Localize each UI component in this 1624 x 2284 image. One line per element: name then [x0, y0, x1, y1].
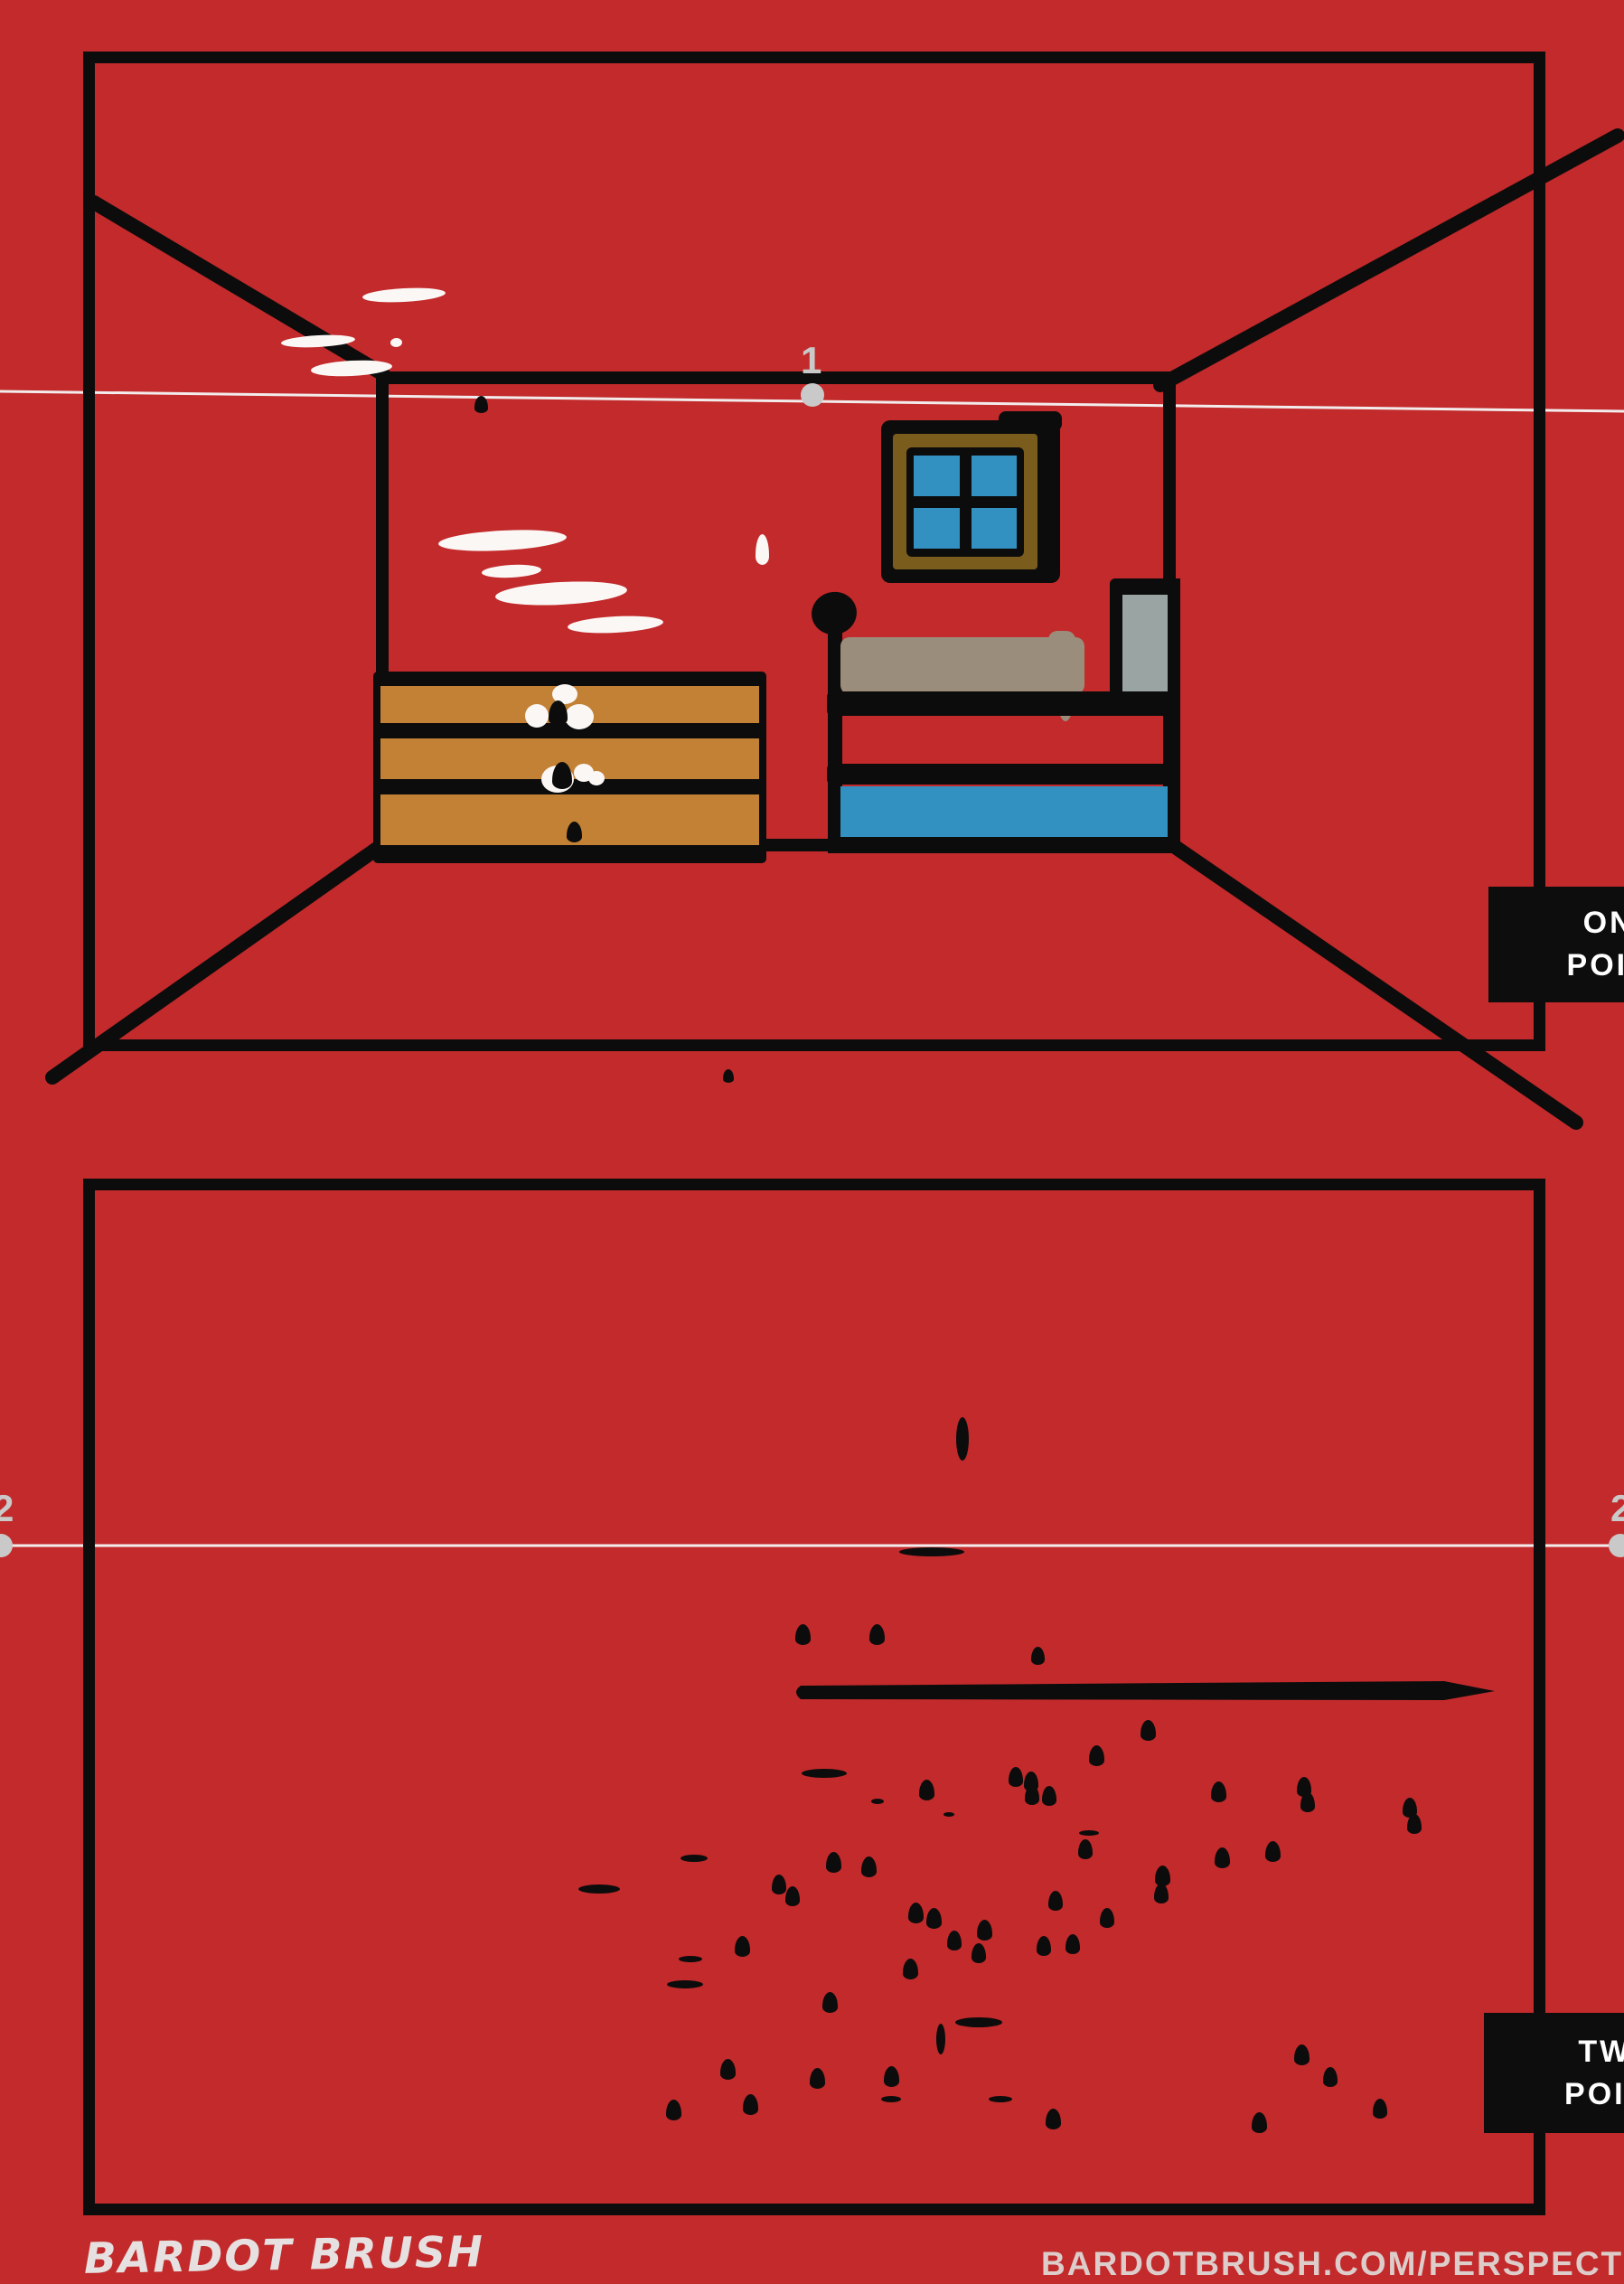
caption-two-point-line2: POINT — [1564, 2073, 1624, 2116]
paint-drop — [972, 1943, 986, 1963]
paint-drop — [1025, 1785, 1039, 1805]
window — [881, 420, 1060, 583]
caption-two-point: TWO POINT — [1484, 2013, 1624, 2133]
paint-drop — [1009, 1767, 1023, 1787]
paint-drop — [1089, 1745, 1104, 1766]
paint-drop — [772, 1875, 786, 1894]
paint-drop — [1046, 2109, 1061, 2129]
paint-dash — [943, 1812, 954, 1817]
paint-drop — [1031, 1647, 1045, 1665]
paint-drop — [1042, 1786, 1056, 1806]
paint-drop — [720, 2059, 736, 2080]
paint-streak — [956, 1417, 969, 1461]
dresser — [373, 672, 766, 863]
paint-drop — [822, 1992, 838, 2013]
paint-dash — [989, 2096, 1012, 2102]
bed — [812, 578, 1184, 859]
paint-dash — [881, 2096, 901, 2102]
paint-drop — [1037, 1936, 1051, 1956]
paint-dash — [802, 1769, 847, 1778]
paint-drop — [474, 396, 488, 413]
paint-drop — [1065, 1934, 1080, 1954]
drawer-knob-highlight — [588, 771, 605, 785]
paint-dash — [681, 1855, 708, 1862]
window-pane — [914, 456, 960, 496]
drawer-knob-highlight — [565, 704, 594, 729]
vanishing-point-2-right-dot — [1609, 1534, 1624, 1557]
paint-drop — [743, 2094, 758, 2115]
bed-rail-bottom — [827, 837, 1180, 853]
panel-one-point: 1 — [0, 0, 1624, 1175]
wall-highlight — [390, 338, 402, 348]
paint-drop — [1048, 1891, 1063, 1911]
paint-dash — [578, 1885, 620, 1894]
bed-rail-top — [827, 691, 1180, 716]
drawer-knob-highlight — [525, 704, 549, 728]
paint-drop — [1373, 2099, 1387, 2119]
paint-drop — [1407, 1814, 1422, 1834]
bed-post-right — [1168, 578, 1180, 853]
caption-one-point-line1: ONE — [1583, 902, 1624, 945]
pillow — [840, 637, 1084, 694]
panel-two-point: 2 2 TWO POINT — [0, 1175, 1624, 2223]
paint-drop — [947, 1931, 962, 1950]
paint-drop — [1141, 1720, 1156, 1741]
window-panes — [914, 456, 1017, 549]
paint-drop — [735, 1936, 750, 1957]
bed-post-knob — [807, 587, 861, 639]
paint-drop — [795, 1624, 811, 1645]
caption-one-point-line2: POINT — [1567, 945, 1624, 987]
paint-drop — [1078, 1839, 1093, 1859]
paint-drop — [861, 1856, 877, 1877]
paint-drop — [926, 1908, 942, 1929]
paint-dash — [871, 1799, 884, 1804]
paint-dash — [899, 1547, 964, 1556]
vanishing-point-2-right-label: 2 — [1610, 1490, 1624, 1527]
window-pane — [972, 456, 1018, 496]
paint-dash — [955, 2017, 1002, 2027]
wall-highlight-drop — [756, 534, 769, 565]
vanishing-point-2-left-label: 2 — [0, 1490, 14, 1527]
window-pane — [914, 508, 960, 549]
paint-dash — [667, 1980, 703, 1988]
brand-logo: BARDOT BRUSH — [84, 2227, 485, 2284]
paint-drop — [977, 1920, 992, 1941]
paint-drop — [908, 1903, 924, 1923]
site-url: BARDOTBRUSH.COM/PERSPECTIVE — [1041, 2245, 1624, 2283]
paint-drop — [1300, 1792, 1315, 1812]
paint-drop — [1294, 2044, 1310, 2065]
window-pane — [972, 508, 1018, 549]
vanishing-point-1-label: 1 — [801, 342, 821, 380]
paint-dash — [1079, 1830, 1099, 1836]
paint-drop — [884, 2066, 899, 2087]
paint-streak — [936, 2024, 945, 2054]
window-frame — [893, 434, 1037, 569]
paint-drop — [1215, 1847, 1230, 1868]
window-sash — [906, 447, 1024, 557]
paint-drop — [1252, 2112, 1267, 2133]
blanket — [840, 786, 1171, 841]
paint-drop — [1323, 2067, 1338, 2087]
paint-dash — [679, 1956, 702, 1962]
caption-one-point: ONE POINT — [1488, 887, 1624, 1002]
paint-drop — [1155, 1866, 1170, 1886]
perspective-worksheet: { "document": { "description_note": "Han… — [0, 0, 1624, 2260]
caption-two-point-line1: TWO — [1578, 2031, 1624, 2073]
paint-drop — [869, 1624, 885, 1645]
paint-drop — [666, 2100, 681, 2120]
paint-drop — [1211, 1781, 1226, 1802]
bed-rail-middle — [827, 764, 1180, 785]
paint-drop — [1154, 1884, 1169, 1903]
paint-drop — [1265, 1841, 1281, 1862]
paint-drop — [810, 2068, 825, 2089]
vanishing-point-2-left-dot — [0, 1534, 13, 1557]
paint-drop — [903, 1959, 918, 1979]
paint-drop — [785, 1886, 800, 1906]
paint-drop — [826, 1852, 841, 1873]
paint-drop — [1100, 1908, 1114, 1928]
paint-drop — [919, 1780, 934, 1800]
vanishing-point-1-dot — [801, 383, 824, 407]
